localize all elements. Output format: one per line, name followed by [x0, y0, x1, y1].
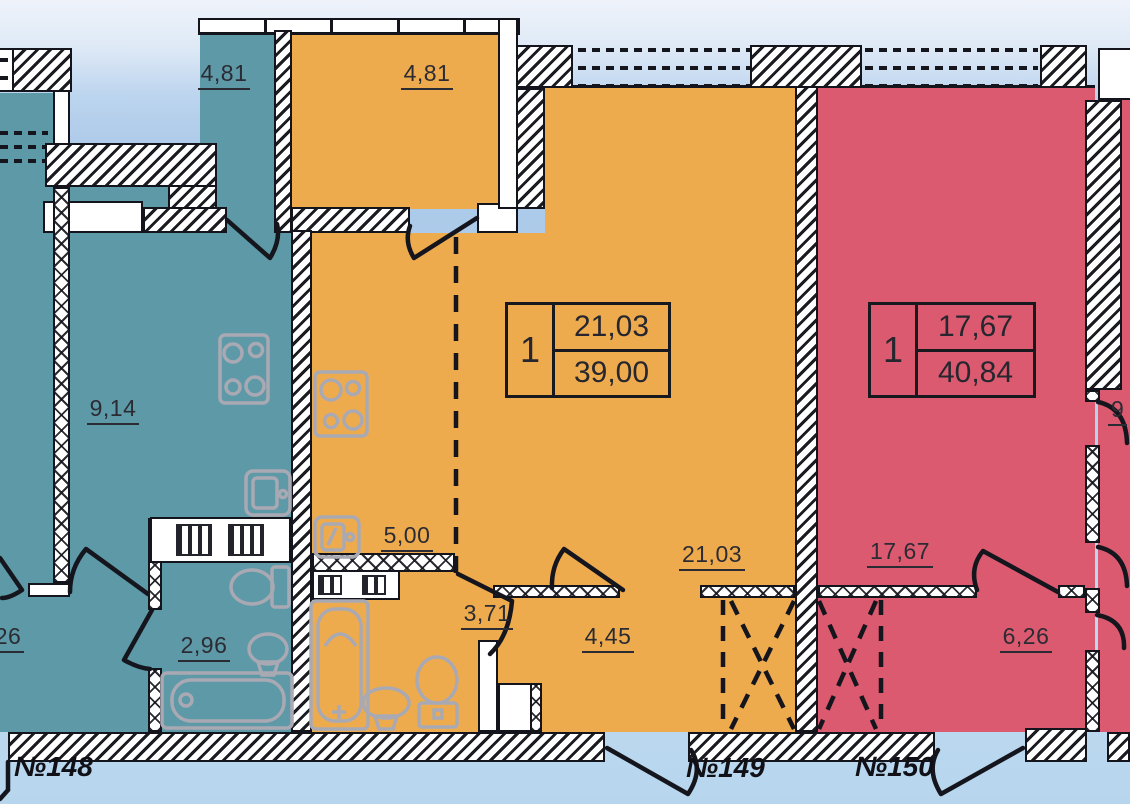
stove-icon: [220, 335, 268, 403]
entrance-door-149: [607, 748, 697, 794]
room-area-label: 4,81: [196, 60, 252, 90]
door-swing-room-148: [70, 549, 148, 594]
door-swing-hall-150: [974, 551, 1058, 592]
stove-icon: [315, 372, 367, 436]
entrance-door-150: [933, 748, 1023, 794]
washbasin-icon: [363, 688, 409, 729]
living-area-value: 17,67: [918, 305, 1033, 352]
room-area-label: 21,03: [677, 541, 747, 571]
rooms-count: 1: [508, 305, 555, 395]
floor-plan: 4,81 4,81 9,14 2,96 26 5,00 3,71 4,45 21…: [0, 0, 1130, 804]
kitchen-sink-icon: [246, 471, 290, 515]
room-area-label: 4,45: [580, 623, 636, 653]
toilet-icon: [417, 657, 457, 727]
room-area-label: 4,81: [399, 60, 455, 90]
door-swing-hall-149: [552, 549, 623, 590]
total-area-value: 40,84: [918, 352, 1033, 396]
toilet-icon: [231, 567, 289, 607]
door-swing-balcony-149: [408, 218, 477, 258]
room-area-label: 6,26: [998, 623, 1054, 653]
linework-overlay: [0, 0, 1130, 804]
apartment-number-149: №149: [686, 752, 765, 784]
living-area-value: 21,03: [555, 305, 668, 352]
apartment-info-box-150: 1 17,67 40,84: [868, 302, 1036, 398]
kitchen-sink-icon: [315, 517, 359, 557]
door-swing-neighbor-right: [1097, 615, 1124, 648]
room-area-label: 3,71: [459, 600, 515, 630]
door-swing-bath-148: [124, 610, 152, 669]
apartment-info-box-149: 1 21,03 39,00: [505, 302, 671, 398]
wardrobe-symbol: [723, 600, 794, 730]
room-area-label: 17,67: [865, 538, 935, 568]
bathtub-icon: [311, 601, 368, 729]
room-area-label-partial: 26: [0, 623, 34, 653]
rooms-count: 1: [871, 305, 918, 395]
door-swing-balcony-148: [227, 220, 278, 258]
room-area-label: 2,96: [176, 632, 232, 662]
wardrobe-symbol: [819, 600, 881, 730]
room-area-label: 9,14: [85, 395, 141, 425]
bathtub-icon: [162, 673, 292, 728]
room-area-label: 5,00: [379, 522, 435, 552]
total-area-value: 39,00: [555, 352, 668, 396]
washbasin-icon: [249, 634, 287, 675]
apartment-number-148: №148: [14, 751, 93, 783]
door-swing-neighbor-right: [1098, 547, 1127, 586]
room-area-label-partial: 9: [1108, 396, 1130, 426]
apartment-number-150: №150: [855, 751, 934, 783]
